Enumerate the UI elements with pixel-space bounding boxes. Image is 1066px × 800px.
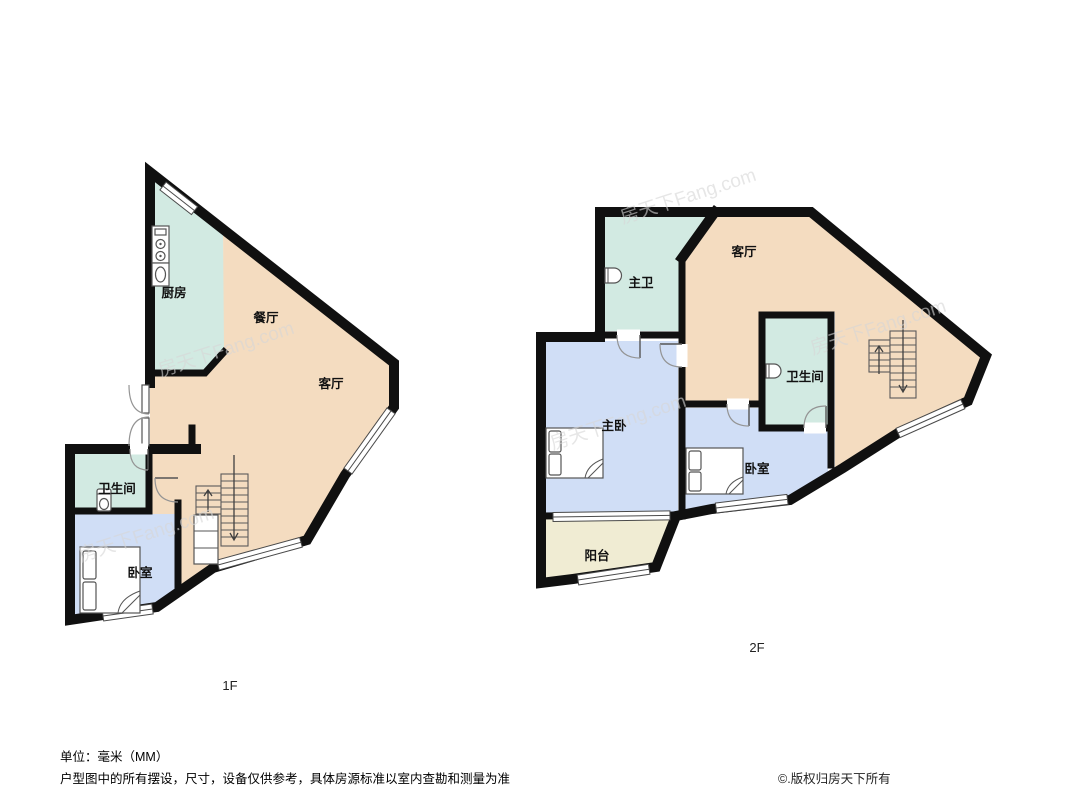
label-bedroom-2f: 卧室: [744, 461, 770, 476]
label-bathroom-2f: 卫生间: [786, 369, 824, 384]
floor-label-2f: 2F: [749, 640, 764, 655]
window: [553, 511, 670, 522]
label-master-bath: 主卫: [628, 275, 654, 290]
label-bedroom-1f: 卧室: [127, 565, 153, 580]
bathtub-icon: [766, 364, 781, 378]
bathtub-icon: [605, 268, 622, 283]
floor-label-1f: 1F: [222, 678, 237, 693]
label-kitchen: 厨房: [161, 285, 186, 300]
unit-note: 单位：毫米（MM）: [60, 746, 168, 765]
disclaimer-note: 户型图中的所有摆设，尺寸，设备仅供参考，具体房源标准以室内查勘和测量为准: [60, 768, 510, 787]
label-living-1f: 客厅: [317, 376, 344, 391]
floorplan-canvas: 房天下Fang.com 房天下Fang.com 房天下Fang.com 房天下F…: [0, 0, 1066, 800]
label-dining: 餐厅: [252, 310, 279, 325]
label-master-bedroom: 主卧: [601, 418, 627, 433]
label-balcony: 阳台: [584, 548, 609, 563]
stove-icon: [152, 226, 169, 263]
copyright-note: ©.版权归房天下所有: [778, 768, 891, 787]
entry-door-swing: [129, 385, 149, 446]
label-living-2f: 客厅: [730, 244, 757, 259]
label-bathroom-1f: 卫生间: [98, 481, 136, 496]
bed-icon: [686, 448, 743, 494]
floorplan-page: 房天下Fang.com 房天下Fang.com 房天下Fang.com 房天下F…: [0, 0, 1066, 800]
sink-icon: [152, 263, 169, 286]
